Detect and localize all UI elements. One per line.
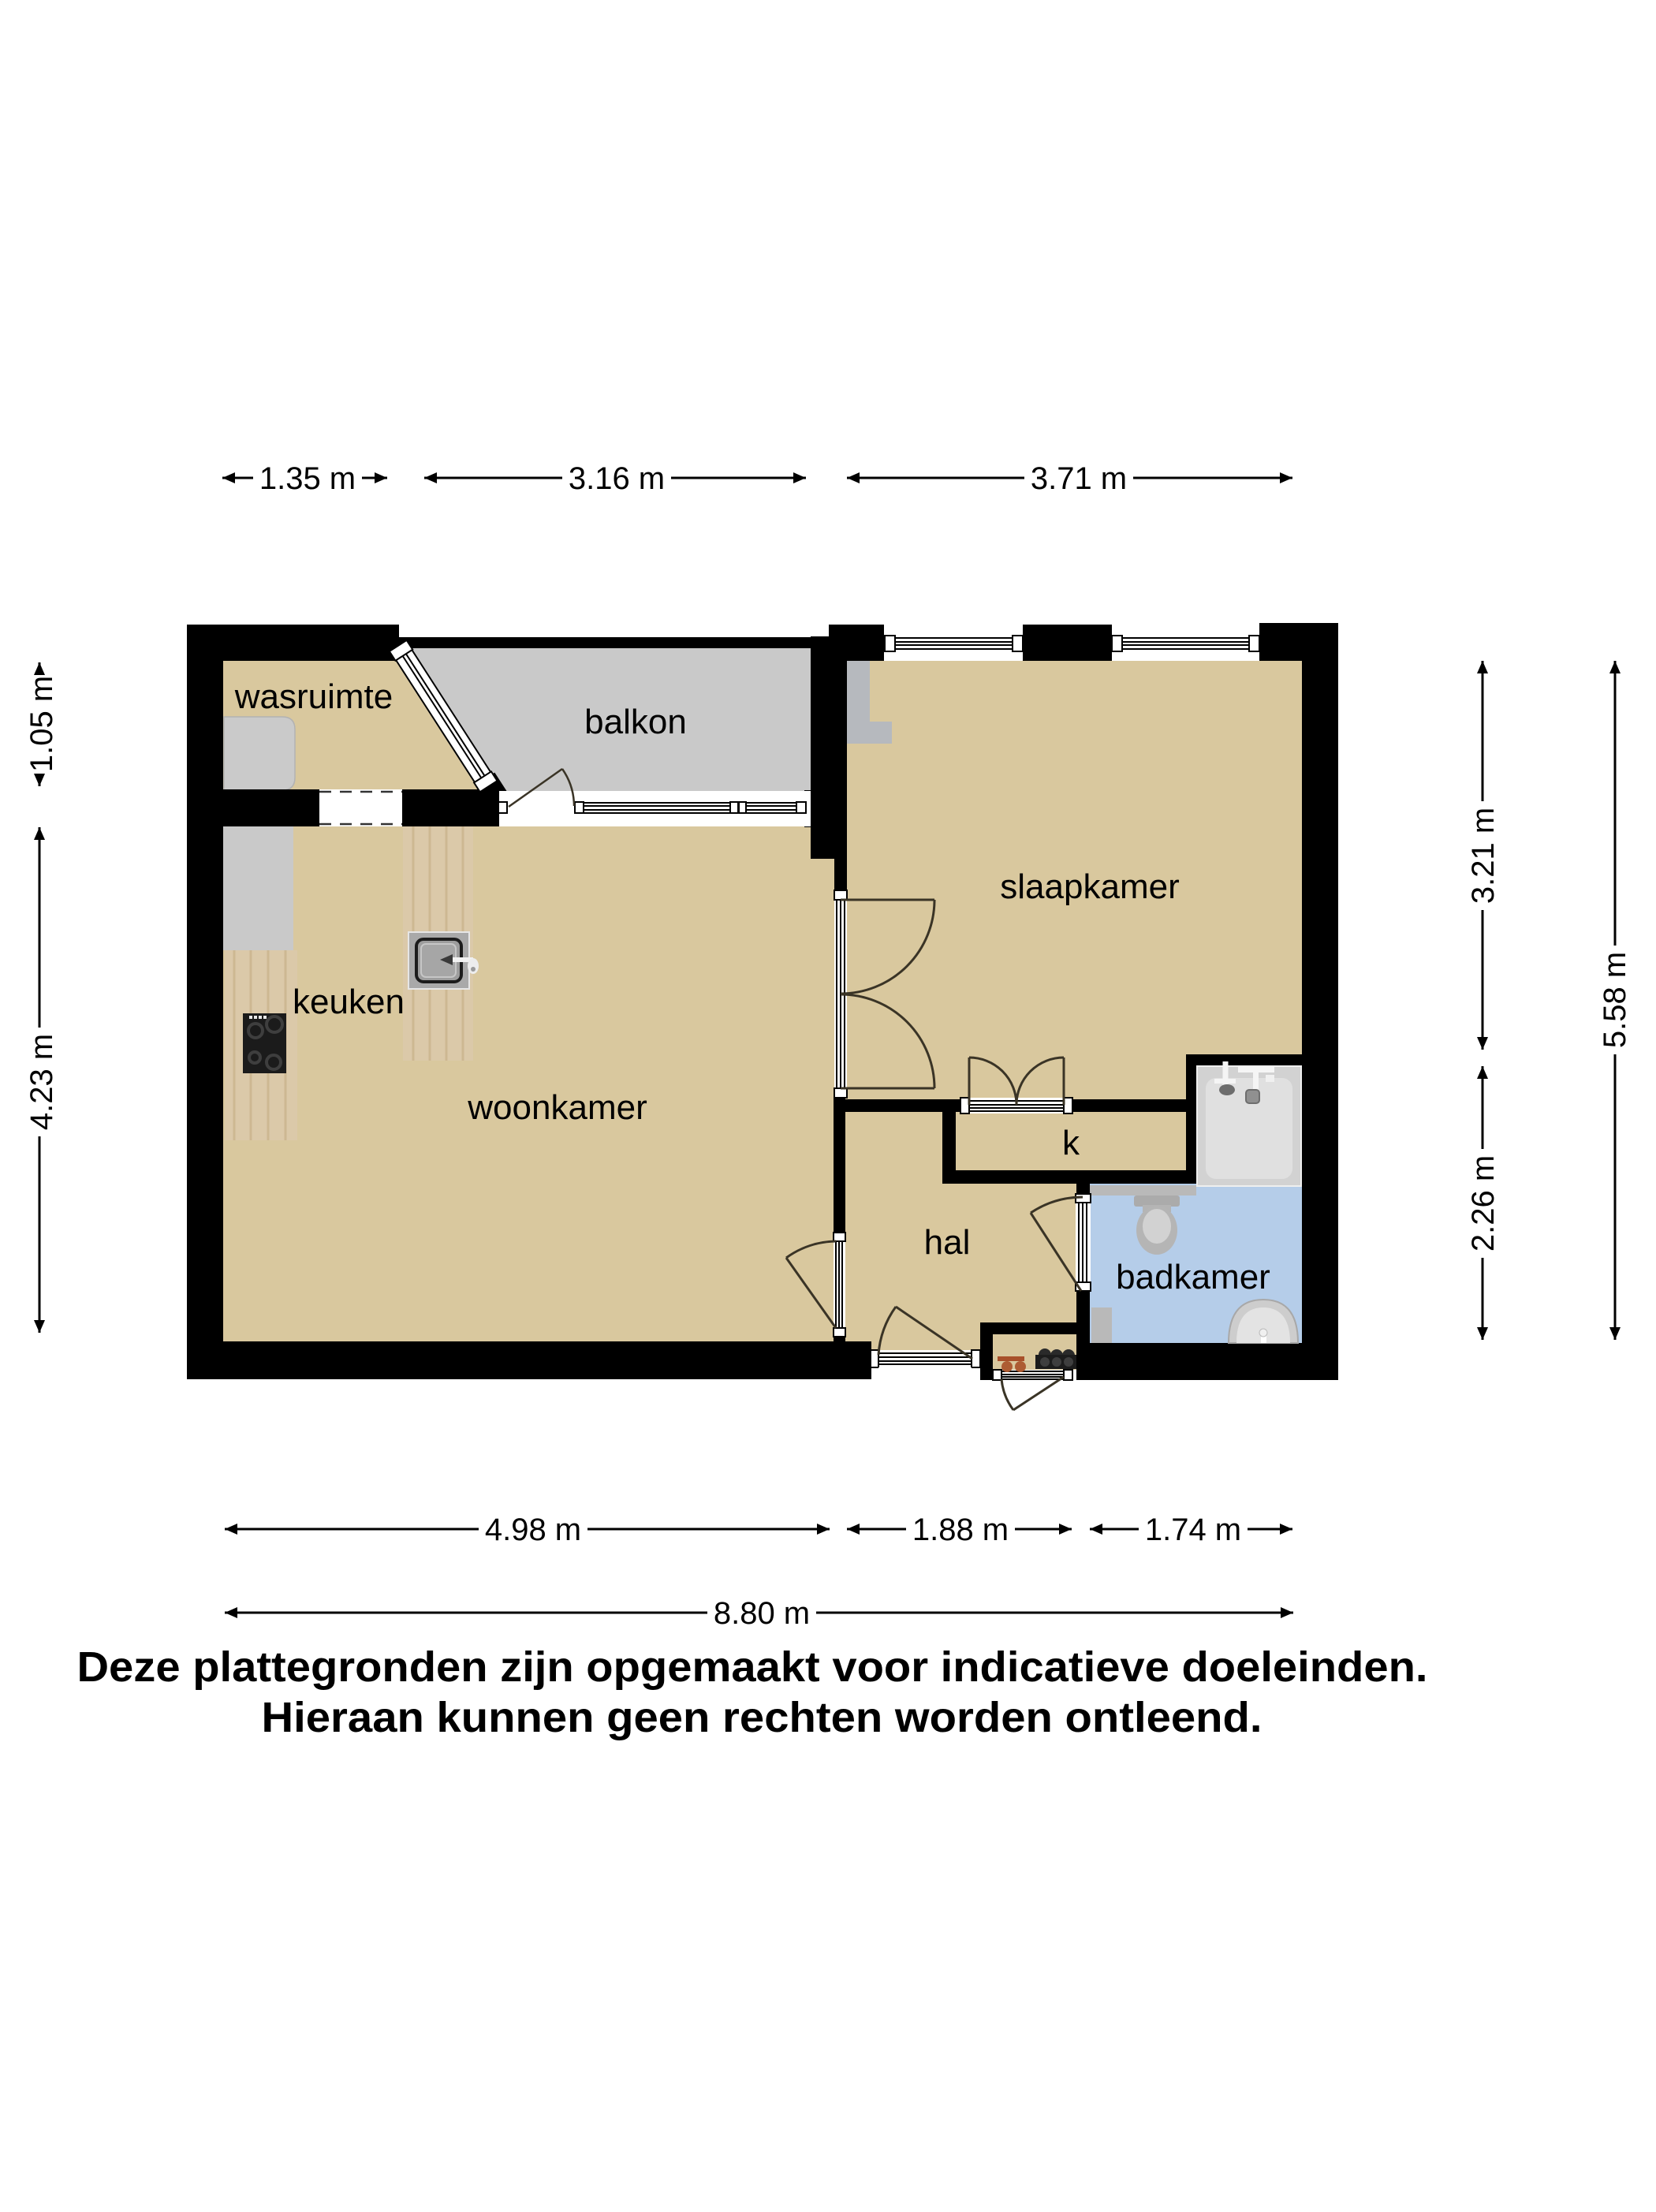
- svg-text:1.88 m: 1.88 m: [912, 1513, 1009, 1547]
- svg-text:Deze plattegronden zijn opgema: Deze plattegronden zijn opgemaakt voor i…: [77, 1643, 1428, 1691]
- svg-text:wasruimte: wasruimte: [234, 677, 393, 716]
- svg-text:1.05 m: 1.05 m: [24, 676, 59, 772]
- svg-text:4.98 m: 4.98 m: [485, 1513, 581, 1547]
- svg-text:slaapkamer: slaapkamer: [1000, 867, 1179, 906]
- svg-text:4.23 m: 4.23 m: [24, 1034, 59, 1130]
- svg-text:3.21 m: 3.21 m: [1466, 808, 1501, 904]
- svg-text:woonkamer: woonkamer: [467, 1088, 647, 1127]
- svg-text:hal: hal: [924, 1223, 971, 1262]
- svg-text:keuken: keuken: [293, 983, 405, 1021]
- svg-text:5.58 m: 5.58 m: [1598, 952, 1632, 1048]
- svg-text:balkon: balkon: [584, 703, 687, 741]
- svg-text:3.16 m: 3.16 m: [569, 461, 665, 496]
- svg-text:1.74 m: 1.74 m: [1145, 1513, 1241, 1547]
- svg-text:2.26 m: 2.26 m: [1466, 1155, 1501, 1251]
- svg-text:1.35 m: 1.35 m: [259, 461, 356, 496]
- svg-text:badkamer: badkamer: [1116, 1258, 1270, 1296]
- svg-text:3.71 m: 3.71 m: [1031, 461, 1127, 496]
- svg-text:Hieraan kunnen geen rechten wo: Hieraan kunnen geen rechten worden ontle…: [262, 1694, 1263, 1741]
- svg-text:k: k: [1062, 1124, 1080, 1162]
- svg-text:8.80 m: 8.80 m: [714, 1596, 810, 1631]
